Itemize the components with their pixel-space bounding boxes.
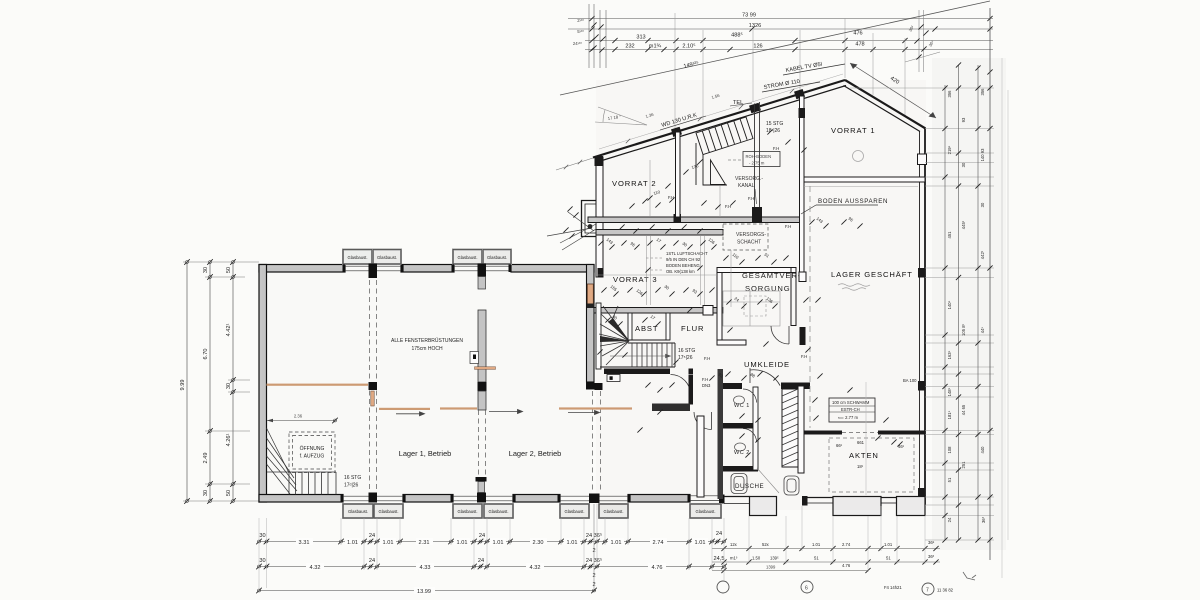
- svg-text:30: 30: [980, 202, 985, 207]
- svg-text:Glasbaust.: Glasbaust.: [378, 509, 398, 514]
- svg-text:2.10⁵: 2.10⁵: [682, 43, 695, 50]
- svg-text:5ʸ³⁰: 5ʸ³⁰: [577, 29, 584, 34]
- svg-text:2.74: 2.74: [653, 540, 664, 546]
- svg-text:4.76: 4.76: [842, 563, 851, 568]
- svg-text:3.31: 3.31: [299, 540, 310, 546]
- svg-text:2.74: 2.74: [842, 542, 851, 547]
- svg-text:6: 6: [805, 586, 808, 592]
- svg-text:44⁵: 44⁵: [980, 327, 985, 334]
- svg-text:1.50: 1.50: [752, 556, 761, 561]
- svg-text:2.30: 2.30: [533, 540, 544, 546]
- svg-text:163⁵: 163⁵: [947, 350, 952, 359]
- svg-text:313: 313: [636, 35, 645, 41]
- svg-text:442¹: 442¹: [980, 250, 985, 259]
- svg-text:2.49: 2.49: [203, 453, 209, 464]
- svg-text:4.32: 4.32: [310, 565, 321, 571]
- svg-text:126: 126: [753, 44, 762, 50]
- svg-text:251: 251: [961, 461, 966, 469]
- svg-text:Glasbaust.: Glasbaust.: [348, 509, 368, 514]
- svg-text:1.01: 1.01: [347, 540, 358, 546]
- svg-text:7: 7: [926, 588, 929, 594]
- svg-text:30: 30: [203, 267, 209, 273]
- svg-text:30: 30: [259, 533, 265, 539]
- svg-text:Glasbaust.: Glasbaust.: [377, 255, 397, 260]
- svg-text:36³: 36³: [928, 554, 935, 559]
- svg-text:4.32: 4.32: [530, 565, 541, 571]
- svg-text:24ʸ³⁰: 24ʸ³⁰: [573, 41, 582, 46]
- svg-text:356: 356: [947, 90, 952, 98]
- svg-text:1.01: 1.01: [611, 540, 622, 546]
- svg-text:50: 50: [226, 490, 232, 496]
- svg-text:30: 30: [226, 383, 232, 389]
- svg-text:m1³: m1³: [730, 556, 738, 561]
- svg-text:1.01: 1.01: [884, 542, 893, 547]
- svg-text:2.31: 2.31: [419, 540, 430, 546]
- svg-text:140 93: 140 93: [980, 148, 985, 161]
- svg-text:51: 51: [886, 556, 891, 561]
- svg-text:24: 24: [369, 558, 375, 564]
- svg-text:4.33: 4.33: [420, 565, 431, 571]
- svg-text:219⁵: 219⁵: [947, 145, 952, 154]
- svg-text:12x: 12x: [730, 542, 738, 547]
- svg-text:9.99: 9.99: [180, 380, 186, 391]
- svg-text:139⁵: 139⁵: [770, 556, 779, 561]
- svg-text:6.70: 6.70: [203, 349, 209, 360]
- svg-text:451: 451: [947, 231, 952, 239]
- svg-text:1.01: 1.01: [567, 540, 578, 546]
- svg-text:Glasbaust.: Glasbaust.: [347, 255, 367, 260]
- svg-text:476: 476: [853, 31, 862, 37]
- svg-text:13.99: 13.99: [417, 589, 431, 595]
- svg-text:Glasbaust.: Glasbaust.: [457, 509, 477, 514]
- svg-text:24: 24: [479, 533, 485, 539]
- svg-text:Glasbaust.: Glasbaust.: [457, 255, 477, 260]
- svg-text:445¹: 445¹: [961, 220, 966, 229]
- svg-text:Glasbaust.: Glasbaust.: [488, 509, 508, 514]
- svg-text:1.01: 1.01: [695, 540, 706, 546]
- svg-text:181⁵: 181⁵: [947, 410, 952, 419]
- svg-text:1.01: 1.01: [383, 540, 394, 546]
- svg-text:105 8¹: 105 8¹: [961, 323, 966, 335]
- svg-text:4.76: 4.76: [652, 565, 663, 571]
- svg-text:Glasbaust.: Glasbaust.: [564, 509, 584, 514]
- svg-text:2ʸ³⁰: 2ʸ³⁰: [577, 18, 584, 23]
- svg-text:4.26¹: 4.26¹: [226, 433, 232, 446]
- svg-text:232: 232: [625, 44, 634, 50]
- svg-text:356: 356: [980, 88, 985, 96]
- svg-text:30: 30: [203, 490, 209, 496]
- svg-text:4.42¹: 4.42¹: [226, 323, 232, 336]
- svg-text:24,5: 24,5: [714, 556, 725, 562]
- svg-text:Glasbaust.: Glasbaust.: [487, 255, 507, 260]
- svg-text:52x: 52x: [762, 542, 770, 547]
- svg-text:73 99: 73 99: [742, 13, 756, 19]
- svg-text:F4 14h21: F4 14h21: [884, 585, 902, 590]
- svg-text:140⁵: 140⁵: [947, 300, 952, 309]
- svg-text:93: 93: [961, 117, 966, 122]
- svg-text:1.01: 1.01: [457, 540, 468, 546]
- svg-text:478: 478: [855, 42, 864, 48]
- svg-text:30: 30: [259, 558, 265, 564]
- svg-text:108: 108: [947, 446, 952, 454]
- svg-text:51: 51: [947, 477, 952, 482]
- svg-text:488⁵: 488⁵: [731, 32, 743, 39]
- svg-text:36³: 36³: [981, 516, 986, 523]
- svg-text:51: 51: [814, 556, 819, 561]
- svg-text:m1¾: m1¾: [649, 44, 662, 50]
- svg-text:24: 24: [369, 533, 375, 539]
- svg-text:11 36 82: 11 36 82: [937, 588, 954, 593]
- svg-text:44 65: 44 65: [961, 404, 966, 415]
- svg-text:24: 24: [478, 558, 484, 564]
- svg-text:1.01: 1.01: [812, 542, 821, 547]
- svg-text:50: 50: [226, 267, 232, 273]
- svg-text:440: 440: [980, 446, 985, 454]
- svg-text:24: 24: [716, 531, 722, 537]
- svg-text:30: 30: [961, 162, 966, 167]
- svg-text:1399: 1399: [766, 565, 776, 570]
- svg-text:148⁵: 148⁵: [947, 387, 952, 396]
- svg-text:1326: 1326: [749, 23, 761, 29]
- svg-text:1.01: 1.01: [493, 540, 504, 546]
- svg-text:24: 24: [947, 517, 952, 522]
